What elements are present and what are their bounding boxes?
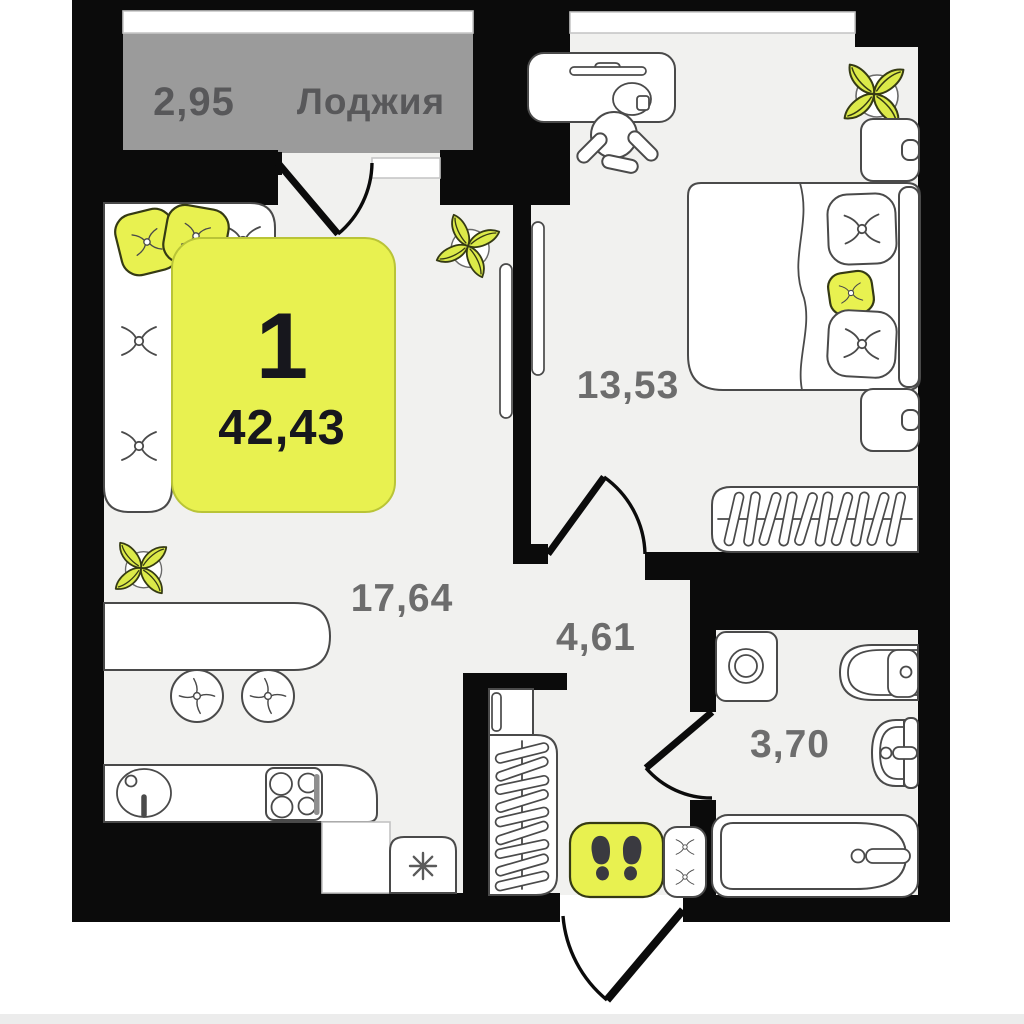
hall-wardrobe xyxy=(489,735,557,895)
bar-stool xyxy=(171,670,223,722)
cooktop xyxy=(266,768,322,820)
wall-segment xyxy=(513,150,531,551)
bar-table xyxy=(104,603,330,670)
bathroom-sink xyxy=(840,645,918,700)
wall-segment xyxy=(104,822,322,893)
desk xyxy=(528,53,675,122)
floor-plan: 2,95 Лоджия xyxy=(0,0,1024,1024)
wall-segment xyxy=(918,47,950,897)
sliding-door-panel xyxy=(500,264,512,418)
wall-segment xyxy=(645,552,950,580)
fridge xyxy=(390,837,456,893)
hall-cabinet xyxy=(489,689,533,735)
bathroom-area-label: 3,70 xyxy=(750,723,830,766)
wall-segment xyxy=(123,0,473,11)
hallway-area-label: 4,61 xyxy=(556,616,636,659)
entry-mat xyxy=(570,823,663,897)
rooms-count-label: 1 xyxy=(256,293,308,398)
loggia-inner-window xyxy=(372,158,440,178)
wall-segment xyxy=(463,673,567,690)
cooktop-handle xyxy=(314,774,320,815)
washing-machine xyxy=(716,632,777,701)
bathtub xyxy=(712,815,918,897)
page-edge xyxy=(0,1014,1024,1024)
wall-segment xyxy=(513,544,548,564)
kitchen-sink xyxy=(117,769,171,817)
wall-segment xyxy=(716,580,950,630)
wall-segment xyxy=(72,0,123,153)
bedroom-window xyxy=(570,12,855,33)
nightstand xyxy=(861,389,919,451)
bar-stool xyxy=(242,670,294,722)
sliding-door-panel xyxy=(532,222,544,375)
wall-segment xyxy=(855,0,950,47)
nightstand xyxy=(861,119,919,181)
snowflake-icon xyxy=(410,853,436,879)
loggia-name-label: Лоджия xyxy=(297,81,445,122)
kitchen-cabinet xyxy=(322,822,390,893)
bedroom-wardrobe xyxy=(712,487,918,552)
bedroom-area-label: 13,53 xyxy=(577,364,680,407)
bed-pillow xyxy=(827,193,897,265)
wall-segment xyxy=(72,893,560,922)
wall-segment xyxy=(683,895,950,922)
entrance-door xyxy=(563,910,683,1000)
loggia-area-label: 2,95 xyxy=(153,80,235,124)
wall-segment xyxy=(440,150,570,205)
loggia: 2,95 Лоджия xyxy=(123,33,473,153)
kitchen-living-area-label: 17,64 xyxy=(351,577,454,620)
wall-segment xyxy=(72,150,104,893)
toilet xyxy=(872,718,918,788)
bed-pillow xyxy=(826,309,897,378)
wall-segment xyxy=(570,0,855,12)
floor-plan-canvas: 2,95 Лоджия xyxy=(0,0,1024,1024)
wall-segment xyxy=(690,580,716,712)
wall-segment xyxy=(463,690,489,895)
loggia-window xyxy=(123,11,473,33)
pouf xyxy=(664,827,706,897)
total-area-label: 42,43 xyxy=(218,401,346,455)
headboard xyxy=(899,187,919,387)
bed xyxy=(688,183,920,390)
unit-badge: 1 42,43 xyxy=(172,238,395,512)
